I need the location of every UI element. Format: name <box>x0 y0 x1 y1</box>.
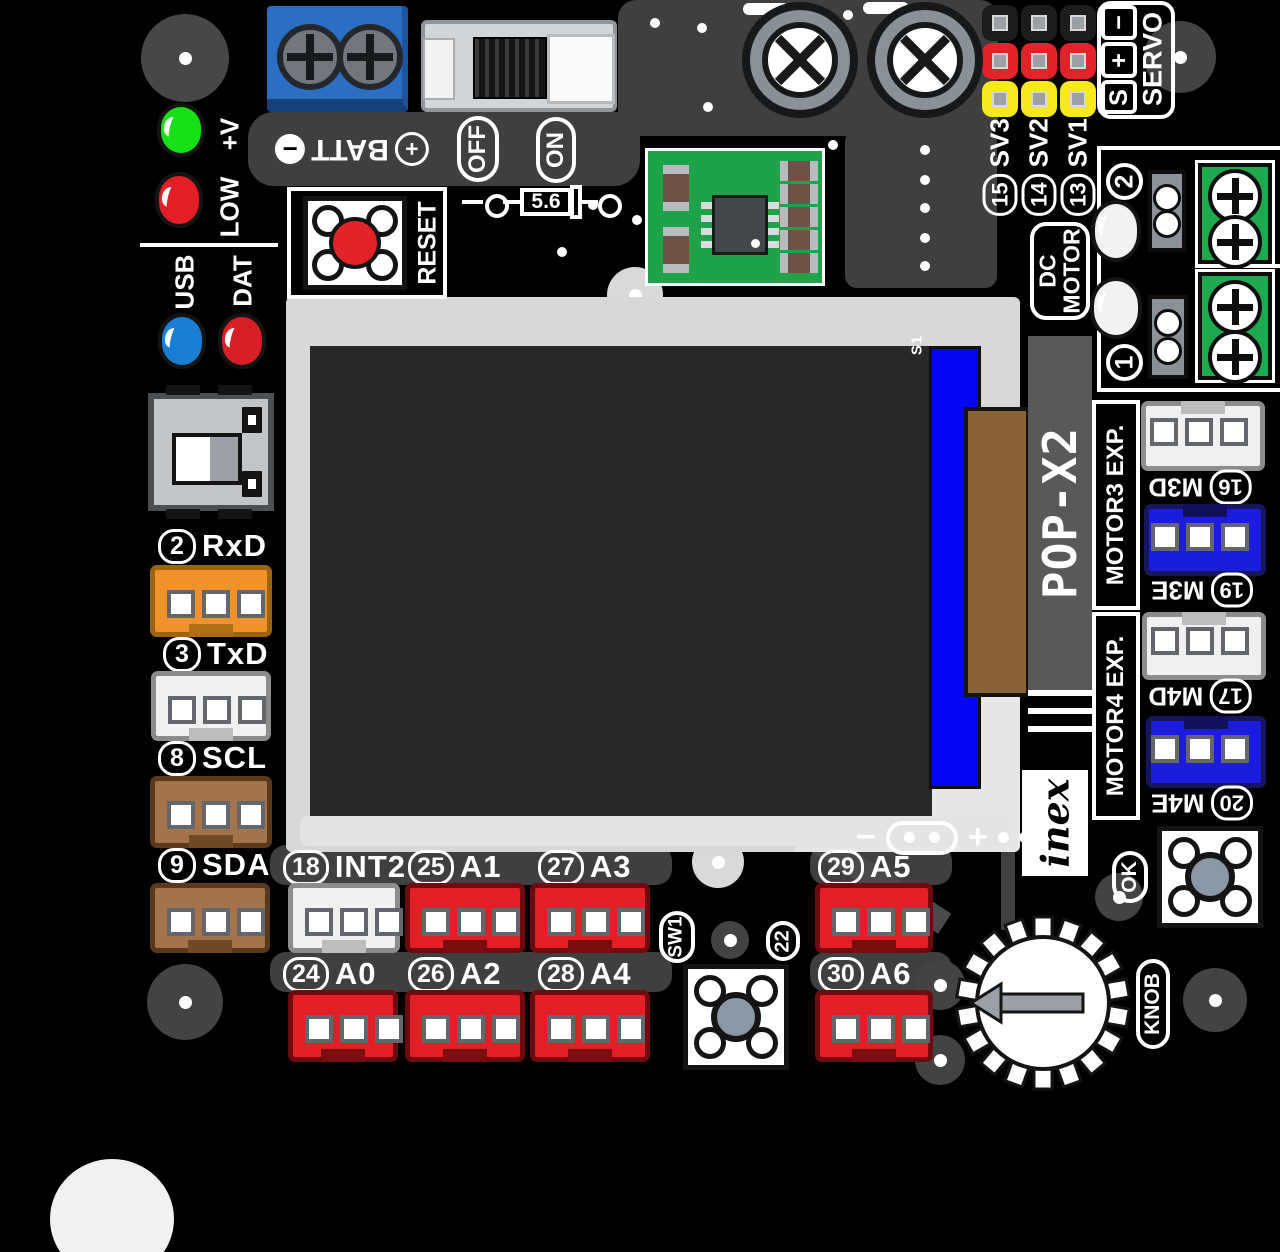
ribbon-lines <box>1028 690 1092 738</box>
power-switch[interactable] <box>421 20 617 112</box>
servo-pin-signal-label: S <box>1101 80 1137 114</box>
plus-circle-icon: + <box>395 132 429 166</box>
silk-dot <box>557 247 567 257</box>
mounting-hole <box>147 964 223 1040</box>
lcd-marking-text: S1 <box>909 335 926 355</box>
smd-capacitor <box>663 227 689 273</box>
usb-led-label: USB <box>170 255 201 310</box>
plus-sign: + <box>968 818 988 857</box>
terminal-screw[interactable] <box>1208 215 1262 269</box>
silk-dot <box>650 18 660 28</box>
servo-pin <box>1021 5 1057 41</box>
vendor-logo: inex <box>1022 770 1088 876</box>
port-a1 <box>405 883 525 953</box>
port-label-m4d: 17 M4D <box>1148 679 1251 714</box>
power-switch-recess <box>547 34 615 104</box>
motor1-led <box>1090 277 1142 339</box>
silk-dot <box>920 175 930 185</box>
regulator-module <box>645 148 825 286</box>
servo-pin <box>1060 43 1096 79</box>
knob-dial[interactable] <box>955 915 1131 1091</box>
servo-ch-sv1-label: 13 SV1 <box>1061 118 1096 216</box>
smd-capacitor <box>663 165 689 211</box>
silk-dot <box>843 10 853 20</box>
terminal-screw[interactable] <box>277 24 343 90</box>
power-switch-flange <box>423 38 455 100</box>
motor2-led <box>1091 200 1141 262</box>
smd-resistor <box>780 161 818 181</box>
port-label-a2: 26 A2 <box>408 956 501 992</box>
motor1-terminal <box>1198 272 1272 380</box>
minus-circle-icon: − <box>275 134 305 164</box>
via <box>1183 968 1247 1032</box>
silk-dot <box>920 203 930 213</box>
silk-dot <box>828 140 838 150</box>
silk-pad <box>485 194 509 218</box>
servo-pin-minus-label: − <box>1101 5 1137 40</box>
port-int2 <box>288 883 400 953</box>
servo-title: SERVO <box>1138 12 1169 106</box>
smd-resistor <box>780 184 818 204</box>
diode-band <box>570 185 582 219</box>
port-a4 <box>530 990 650 1062</box>
divider-line <box>140 243 278 247</box>
port-label-a3: 27 A3 <box>538 849 631 885</box>
knob-slot <box>1001 994 1083 1012</box>
motor1-connector <box>1148 295 1188 379</box>
port-label-txd: 3 TxD <box>163 636 269 672</box>
silk-line <box>503 200 520 204</box>
silk-dot <box>697 23 707 33</box>
motor2-terminal <box>1198 163 1272 264</box>
corner-circle <box>50 1159 174 1252</box>
dc-motor-title-line2: MOTOR <box>1059 228 1086 313</box>
section-line <box>1097 146 1280 150</box>
servo-pin <box>1021 43 1057 79</box>
terminal-screw[interactable] <box>1208 330 1262 384</box>
pin1-dot <box>751 239 760 248</box>
servo-pin <box>982 43 1018 79</box>
servo-pin-plus-label: + <box>1101 42 1137 78</box>
port-m3d <box>1141 401 1265 471</box>
motor-ch1-label: 1 <box>1106 344 1143 381</box>
reset-button-cap[interactable] <box>329 217 381 269</box>
via <box>711 921 749 959</box>
reset-label: RESET <box>414 201 443 284</box>
ic-chip <box>712 195 768 255</box>
pcb-board: S1 − + POP-X2 inex + BATT − OFF ON <box>0 0 1280 1252</box>
silk-pad <box>598 194 622 218</box>
battery-label: + BATT − <box>275 132 429 166</box>
silk-line <box>462 200 483 204</box>
port-label-sda: 9 SDA <box>158 847 270 883</box>
servo-pin <box>1060 81 1096 117</box>
silk-dot <box>920 261 930 271</box>
port-label-a4: 28 A4 <box>538 956 631 992</box>
port-sda <box>150 883 270 953</box>
port-m3e <box>1144 504 1266 576</box>
reset-button[interactable] <box>303 196 407 290</box>
model-name-text: POP-X2 <box>1033 427 1087 599</box>
port-a3 <box>530 883 650 953</box>
servo-pin <box>982 81 1018 117</box>
servo-pin <box>982 5 1018 41</box>
silk-dot <box>632 215 642 225</box>
smd-resistor <box>780 207 818 227</box>
vendor-logo-text: inex <box>1033 779 1078 868</box>
diode-symbol: 5.6 <box>520 188 572 216</box>
port-a0 <box>288 990 398 1062</box>
low-battery-led-label: LOW <box>215 177 246 238</box>
port-label-m3e: 19 M3E <box>1151 573 1253 608</box>
terminal-screw[interactable] <box>1208 280 1262 334</box>
motor3-exp-title: MOTOR3 EXP. <box>1102 425 1130 586</box>
port-a6 <box>815 990 933 1062</box>
smd-resistor <box>780 230 818 250</box>
motor-ch2-label: 2 <box>1106 163 1143 200</box>
dc-motor-title-line1: DC <box>1035 254 1062 287</box>
mounting-hole <box>141 14 229 102</box>
motor4-exp-title: MOTOR4 EXP. <box>1102 636 1130 797</box>
port-label-a0: 24 A0 <box>283 956 376 992</box>
silk-dot <box>920 233 930 243</box>
usb-led <box>158 313 206 369</box>
port-label-a6: 30 A6 <box>818 956 911 992</box>
smd-resistor <box>780 253 818 273</box>
section-line <box>1097 146 1101 392</box>
data-led-label: DAT <box>228 255 259 307</box>
diode-value-text: 5.6 <box>531 190 560 214</box>
lcd-flex-cable <box>964 407 1030 697</box>
port-label-m3d: 16 M3D <box>1148 470 1251 505</box>
power-switch-slider[interactable] <box>473 37 547 99</box>
port-rxd <box>150 565 272 637</box>
silk-dot <box>703 102 713 112</box>
usb-connector <box>148 393 274 511</box>
port-label-scl: 8 SCL <box>158 740 267 776</box>
terminal-screw[interactable] <box>337 24 403 90</box>
section-line <box>1097 388 1280 392</box>
sw1-pin-label: 22 <box>766 921 800 961</box>
motor2-connector <box>1148 170 1186 252</box>
sw1-button[interactable] <box>683 964 789 1070</box>
model-name-label: POP-X2 <box>1033 427 1087 599</box>
off-text: OFF <box>464 125 492 173</box>
port-txd <box>151 671 271 741</box>
power-led <box>157 103 205 157</box>
knob-label: KNOB <box>1136 959 1170 1049</box>
port-scl <box>150 776 272 848</box>
ok-label: OK <box>1112 851 1148 903</box>
servo-pin <box>1060 5 1096 41</box>
port-a5 <box>815 883 933 953</box>
battery-terminal-block <box>267 6 408 112</box>
sw1-button-cap[interactable] <box>711 992 761 1042</box>
lcd-marking-label: S1 <box>909 335 926 355</box>
data-led <box>218 313 266 369</box>
port-a2 <box>405 990 525 1062</box>
ok-button[interactable] <box>1157 826 1263 928</box>
lcd-screen <box>310 346 932 816</box>
servo-ch-sv2-label: 14 SV2 <box>1022 118 1057 216</box>
capacitor <box>742 2 858 118</box>
port-m4e <box>1146 716 1266 788</box>
silk-dot <box>920 145 930 155</box>
low-battery-led <box>155 172 203 228</box>
port-label-a1: 25 A1 <box>408 849 501 885</box>
port-label-a5: 29 A5 <box>818 849 911 885</box>
on-text: ON <box>542 132 570 168</box>
silk-line <box>582 200 598 204</box>
servo-pin <box>1021 81 1057 117</box>
port-label-int2: 18 INT2 <box>283 849 406 885</box>
port-m4d <box>1142 612 1266 680</box>
port-label-rxd: 2 RxD <box>158 528 267 564</box>
capacitor <box>867 2 983 118</box>
off-label: OFF <box>457 116 499 182</box>
on-label: ON <box>536 117 576 183</box>
port-label-m4e: 20 M4E <box>1151 786 1253 821</box>
battery-label-text: BATT <box>311 132 389 166</box>
sw1-label: SW1 <box>659 911 695 963</box>
ok-button-cap[interactable] <box>1185 852 1235 902</box>
servo-ch-sv3-label: 15 SV3 <box>983 118 1018 216</box>
power-led-label: +V <box>215 118 246 151</box>
